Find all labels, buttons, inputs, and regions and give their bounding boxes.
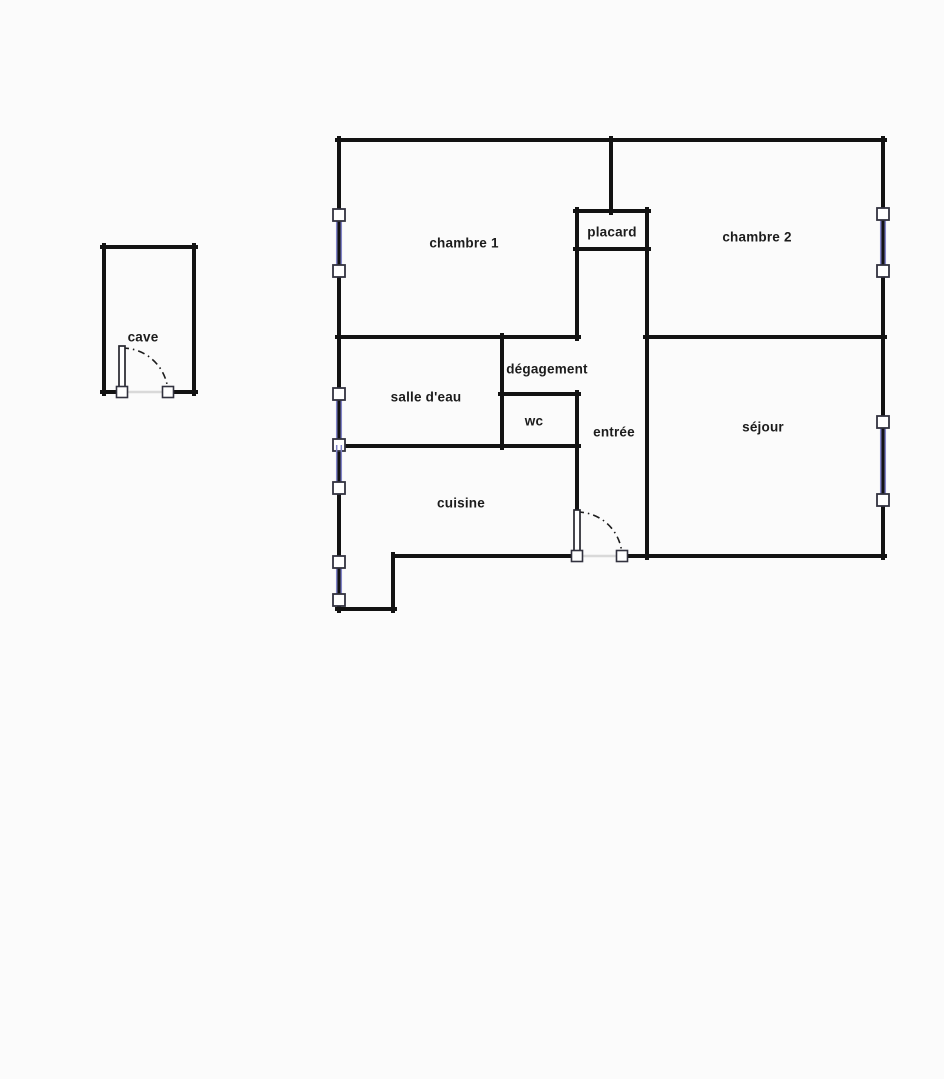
cave-door — [117, 346, 174, 398]
entrance-door — [572, 510, 628, 562]
room-label-entree: entrée — [593, 425, 635, 440]
cave-door-leaf — [119, 346, 125, 389]
room-label-wc: wc — [525, 414, 543, 429]
cave-door-stop-square — [163, 387, 174, 398]
room-label-sejour: séjour — [742, 420, 784, 435]
entrance-door-leaf — [574, 510, 580, 553]
room-label-chambre-2: chambre 2 — [722, 230, 791, 245]
cave-room-outline — [102, 245, 196, 394]
room-label-placard: placard — [587, 225, 636, 240]
apartment-walls — [337, 138, 885, 611]
entrance-door-stop-square — [617, 551, 628, 562]
room-label-cuisine: cuisine — [437, 496, 485, 511]
entrance-door-hinge-square — [572, 551, 583, 562]
room-label-degagement: dégagement — [506, 362, 588, 377]
entrance-door-swing-arc-icon — [577, 512, 622, 556]
room-label-cave: cave — [128, 330, 159, 345]
floor-plan-canvas: cave chambre 1 placard chambre 2 dégagem… — [0, 0, 944, 1079]
room-label-salle-deau: salle d'eau — [391, 390, 462, 405]
cave-door-swing-arc-icon — [122, 348, 168, 392]
room-label-chambre-1: chambre 1 — [429, 236, 498, 251]
floor-plan-drawing — [0, 0, 944, 1079]
cave-door-hinge-square — [117, 387, 128, 398]
